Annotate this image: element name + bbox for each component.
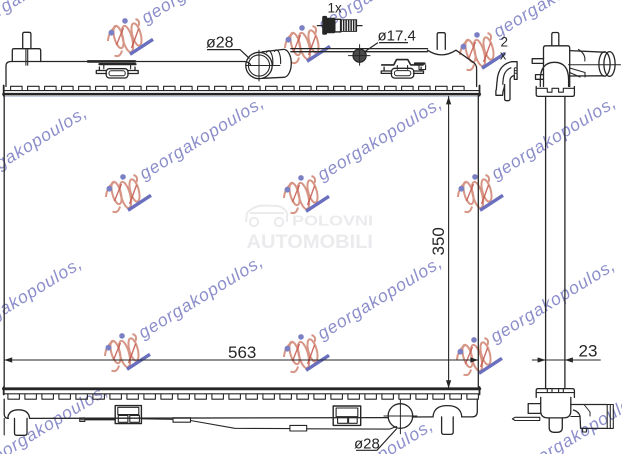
svg-text:ø28: ø28	[206, 35, 234, 52]
svg-text:23: 23	[579, 342, 598, 361]
svg-text:AUTOMOBILI: AUTOMOBILI	[247, 231, 374, 253]
svg-text:x: x	[500, 49, 507, 63]
svg-text:2: 2	[501, 35, 509, 50]
svg-text:ø17.4: ø17.4	[378, 28, 416, 45]
svg-text:350: 350	[429, 227, 448, 255]
svg-text:POLOVNI: POLOVNI	[292, 214, 373, 230]
svg-text:1x: 1x	[328, 1, 343, 16]
svg-text:563: 563	[228, 343, 256, 362]
